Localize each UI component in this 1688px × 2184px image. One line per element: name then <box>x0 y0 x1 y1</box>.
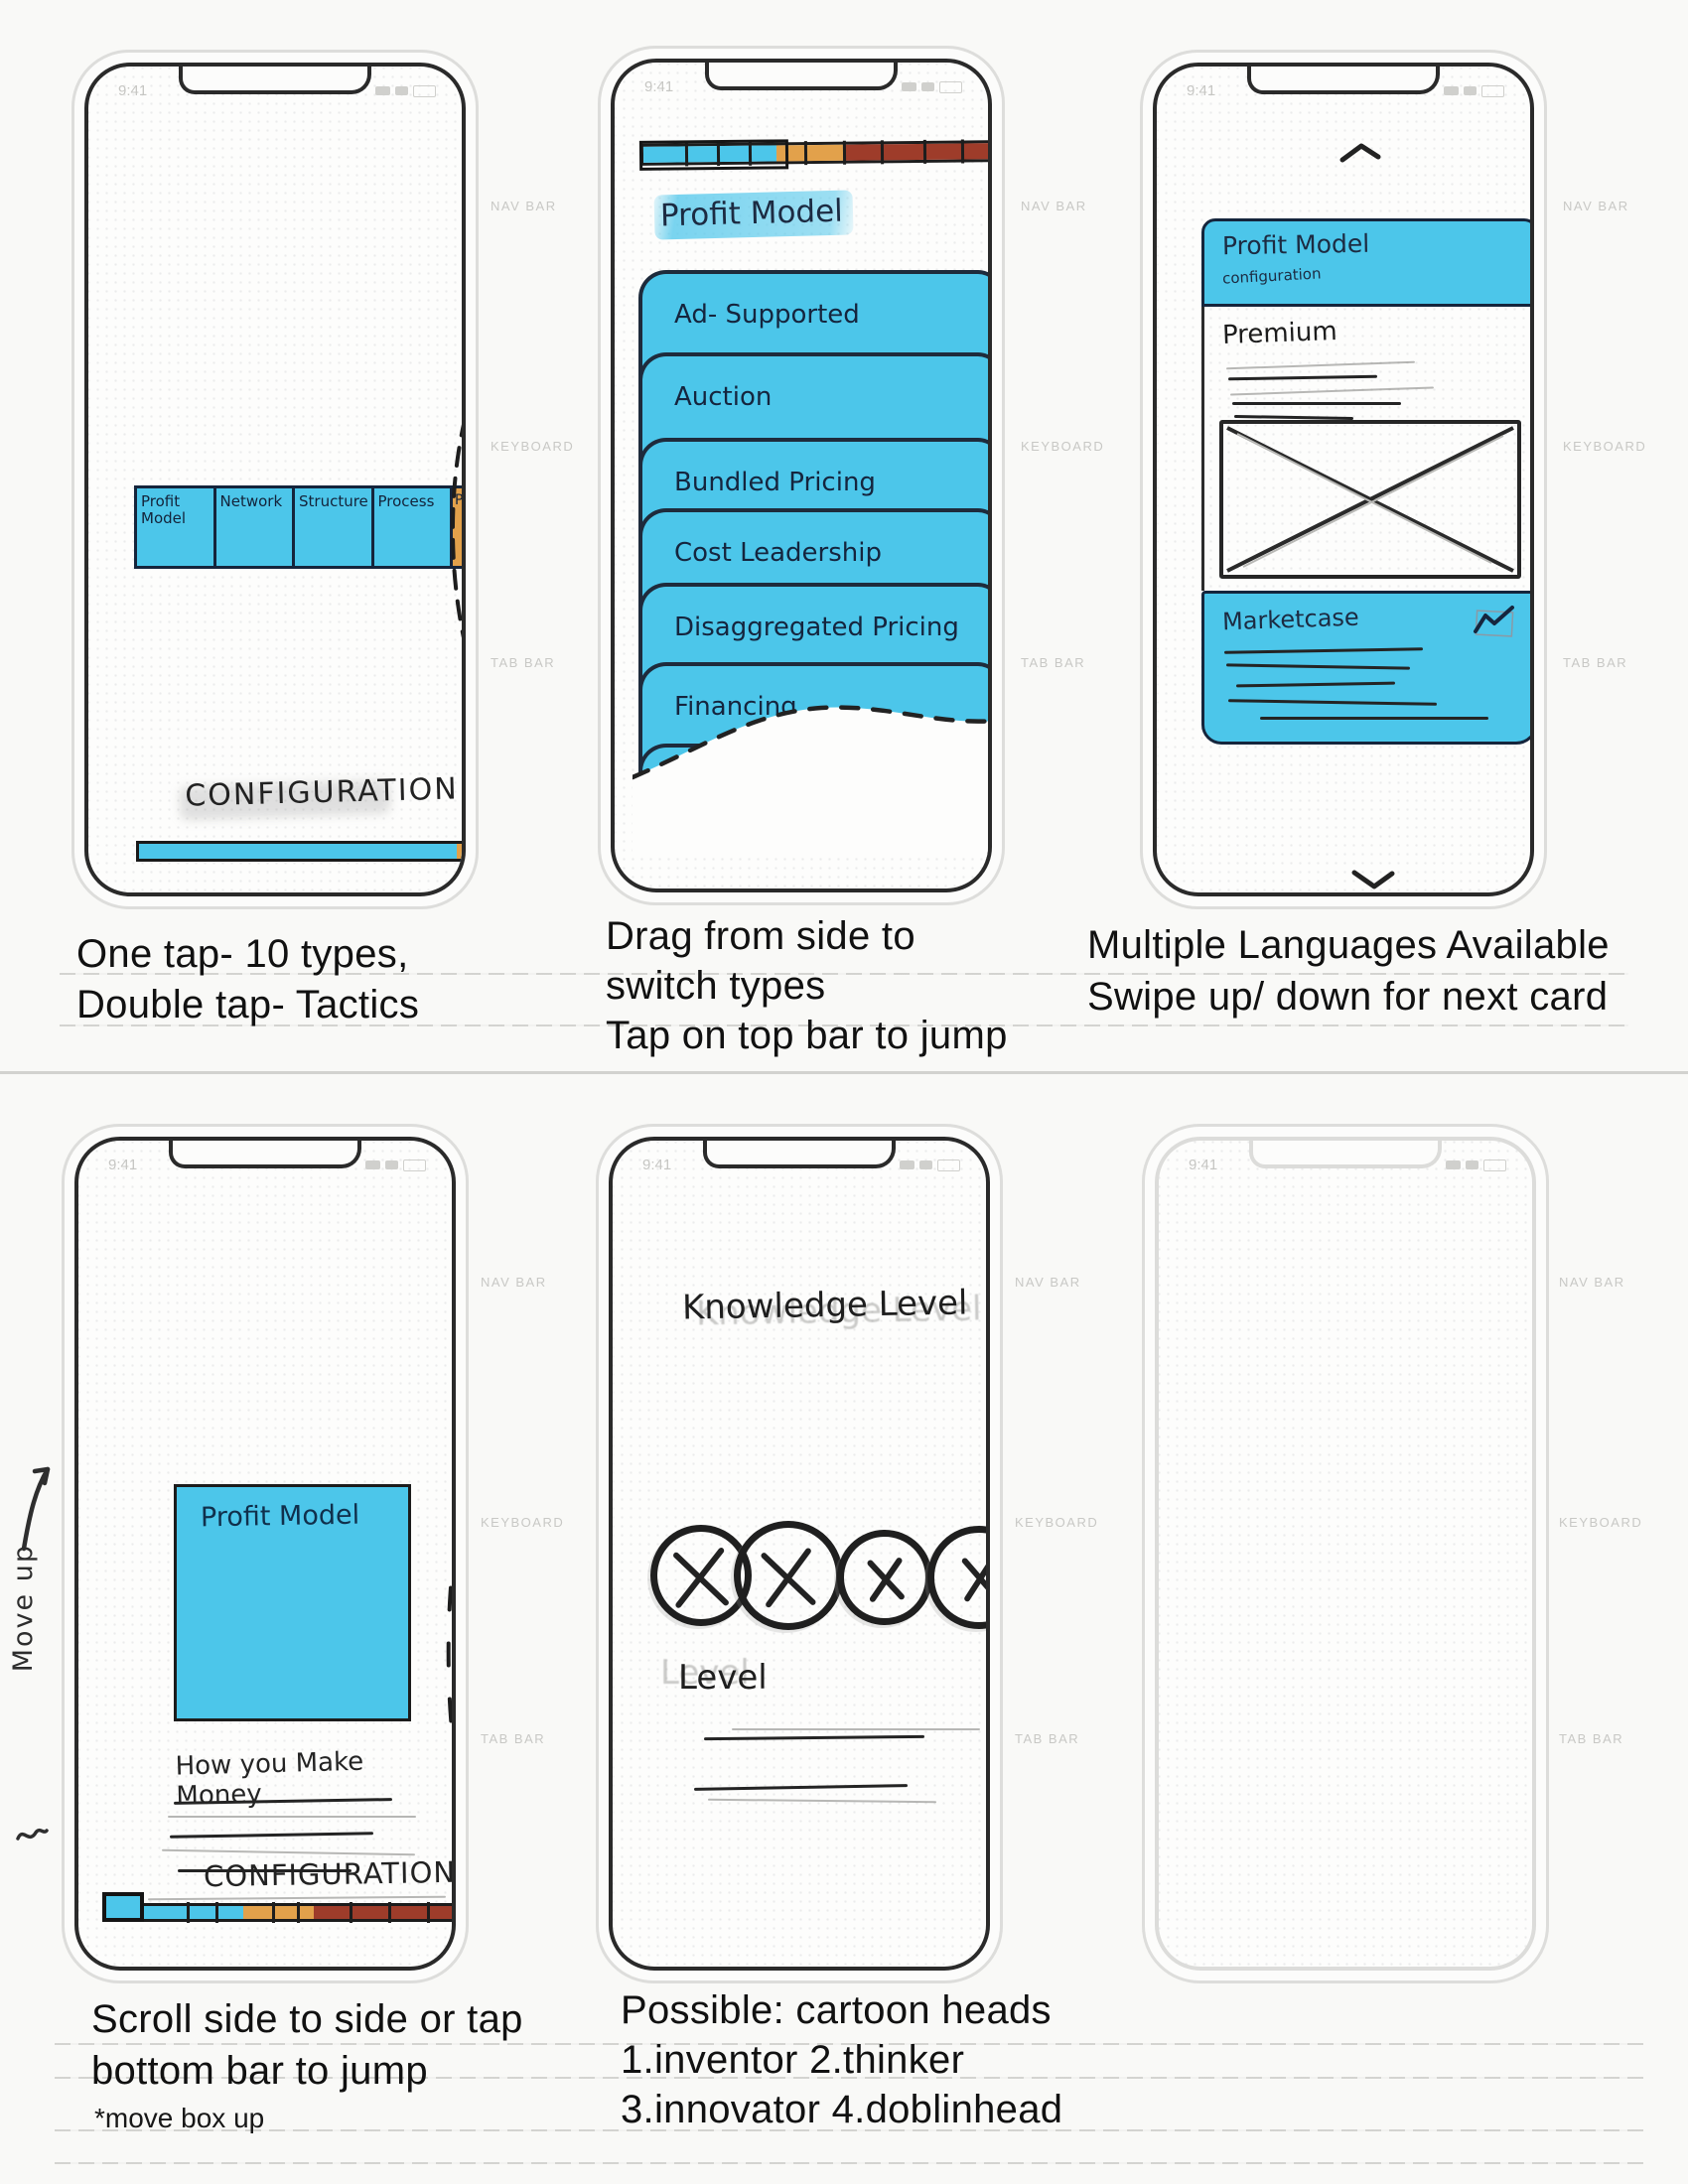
status-time: 9:41 <box>1187 82 1215 99</box>
caption-line: bottom bar to jump <box>91 2045 523 2097</box>
card-label: Bundled Pricing <box>674 468 876 497</box>
status-time: 9:41 <box>118 82 147 99</box>
scribble-line <box>162 1849 415 1855</box>
margin-squiggle <box>14 1823 50 1848</box>
card-label: Ad- Supported <box>674 300 860 330</box>
phone-mockup-types: 9:41 Profit Model Network Structure Proc… <box>71 50 479 909</box>
scribble-line <box>1228 375 1377 380</box>
level-label: Level <box>678 1658 768 1698</box>
scribble-line <box>708 1799 936 1803</box>
caption-line: 1.inventor 2.thinker <box>621 2035 1062 2085</box>
detail-card-body: Premium <box>1201 307 1534 591</box>
scribble-line <box>1260 717 1488 720</box>
template-keyboard-label: KEYBOARD <box>1563 439 1646 454</box>
phone-screen: 9:41 Profit Model Ad- <box>611 59 992 892</box>
template-tabbar-label: TAB BAR <box>1563 655 1627 670</box>
template-keyboard-label: KEYBOARD <box>491 439 574 454</box>
scribble-line <box>170 1832 373 1839</box>
status-icons <box>1444 85 1504 97</box>
jump-bar-tick <box>881 140 884 164</box>
chevron-down-icon[interactable] <box>1349 869 1397 892</box>
template-tabbar-label: TAB BAR <box>1021 655 1085 670</box>
phone-notch <box>1249 1137 1442 1168</box>
marketcase-title: Marketcase <box>1222 604 1360 636</box>
jump-bar-tick <box>922 140 925 164</box>
ruled-line <box>55 2162 1643 2164</box>
phone-screen: 9:41 Profit Model Network Structure Proc… <box>84 63 466 896</box>
x-mark-icon <box>741 1528 836 1623</box>
type-box-profit-model[interactable]: Profit Model <box>137 488 216 566</box>
jump-bar-red-segment[interactable] <box>843 143 992 161</box>
template-navbar-label: NAV BAR <box>491 199 557 213</box>
torn-edge-wave <box>633 658 992 857</box>
scribble-line <box>1226 361 1415 370</box>
scribble-line <box>1234 415 1353 420</box>
status-time: 9:41 <box>108 1157 137 1173</box>
profit-model-card-label: Profit Model <box>201 1500 360 1534</box>
card-label: Cost Leadership <box>674 538 882 568</box>
configuration-label: CONFIGURATION <box>178 771 466 814</box>
caption-line: Drag from side to <box>606 911 1008 961</box>
caption-line: Swipe up/ down for next card <box>1087 971 1610 1023</box>
scribble-line <box>1224 647 1423 653</box>
jump-bar-tick <box>427 1902 430 1923</box>
template-tabbar-label: TAB BAR <box>481 1731 545 1746</box>
caption-line: Multiple Languages Available <box>1087 919 1610 971</box>
phone-mockup-card-list: 9:41 Profit Model Ad- <box>598 46 1005 905</box>
jump-bar-tick <box>350 1902 352 1923</box>
template-keyboard-label: KEYBOARD <box>1559 1515 1642 1530</box>
phone-mockup-detail-card: 9:41 Profit Model configuration Premium <box>1140 50 1547 909</box>
template-keyboard-label: KEYBOARD <box>1021 439 1104 454</box>
template-keyboard-label: KEYBOARD <box>481 1515 564 1530</box>
jump-bar-current-window <box>639 139 789 171</box>
status-icons <box>902 81 962 93</box>
image-placeholder <box>1219 420 1521 579</box>
caption-line: switch types <box>606 961 1008 1011</box>
phone-notch <box>1247 63 1440 94</box>
caption-line: Scroll side to side or tap <box>91 1993 523 2045</box>
line-chart-icon <box>1471 602 1520 641</box>
level-circle-2[interactable] <box>734 1521 843 1630</box>
caption-phone1: One tap- 10 types, Double tap- Tactics <box>76 929 419 1030</box>
phone-notch <box>179 63 371 94</box>
caption-phone4: Scroll side to side or tap bottom bar to… <box>91 1993 523 2097</box>
bottom-bar-current-indicator[interactable] <box>102 1892 144 1922</box>
jump-bar-tick <box>297 1902 300 1923</box>
status-time: 9:41 <box>642 1157 671 1173</box>
phone-notch <box>705 59 898 90</box>
level-circle-3[interactable] <box>837 1530 932 1625</box>
top-jump-bar[interactable] <box>640 140 992 166</box>
caption-phone4-footnote: *move box up <box>94 2103 264 2134</box>
x-mark-icon <box>934 1533 990 1622</box>
jump-bar-tick <box>272 1902 275 1923</box>
jump-bar-tick <box>388 1902 391 1923</box>
x-mark-icon <box>844 1537 925 1618</box>
caption-line: Possible: cartoon heads <box>621 1985 1062 2035</box>
status-time: 9:41 <box>644 78 673 95</box>
section-title: Premium <box>1222 317 1338 350</box>
x-mark-icon <box>657 1532 745 1619</box>
detail-card-header: Profit Model configuration <box>1201 218 1534 307</box>
caption-phone5: Possible: cartoon heads 1.inventor 2.thi… <box>621 1985 1062 2134</box>
jump-bar-tick <box>842 141 845 165</box>
progress-bar-orange-tail <box>457 844 466 859</box>
margin-arrow-up <box>14 1461 58 1553</box>
template-tabbar-label: TAB BAR <box>1015 1731 1079 1746</box>
scribble-line <box>1226 663 1410 669</box>
wireframe-sketch-page: 9:41 Profit Model Network Structure Proc… <box>0 0 1688 2184</box>
status-icons <box>900 1160 960 1171</box>
jump-bar-tick <box>187 1902 190 1923</box>
scribble-line <box>1228 699 1437 705</box>
status-icons <box>1446 1160 1506 1171</box>
scribble-line <box>168 1816 416 1818</box>
phone-mockup-configuration: 9:41 Profit Model How you Make Money CON… <box>62 1124 469 1983</box>
caption-line: Double tap- Tactics <box>76 980 419 1030</box>
template-navbar-label: NAV BAR <box>1021 199 1087 213</box>
status-time: 9:41 <box>1189 1157 1217 1173</box>
image-placeholder-x <box>1223 424 1517 575</box>
template-navbar-label: NAV BAR <box>1563 199 1629 213</box>
scribble-line <box>694 1784 908 1790</box>
chevron-up-icon[interactable] <box>1337 142 1383 164</box>
phone-screen: 9:41 Knowledge Level Knowledge Level <box>609 1137 990 1971</box>
template-keyboard-label: KEYBOARD <box>1015 1515 1098 1530</box>
level-circle-4[interactable] <box>927 1526 990 1629</box>
page-title-text: Profit Model <box>653 190 853 239</box>
scribble-line <box>1230 386 1434 395</box>
bottom-jump-bar[interactable] <box>106 1903 456 1922</box>
jump-bar-tick <box>961 139 964 163</box>
page-title: Profit Model <box>654 193 854 233</box>
card-label: Disaggregated Pricing <box>674 613 959 642</box>
detail-card-subtitle: configuration <box>1222 264 1322 287</box>
configuration-label: CONFIGURATION <box>204 1855 456 1893</box>
caption-line: Tap on top bar to jump <box>606 1011 1008 1060</box>
template-navbar-label: NAV BAR <box>481 1275 547 1290</box>
screen-title: Knowledge Level <box>682 1283 968 1327</box>
phone-notch <box>703 1137 896 1168</box>
phone-notch <box>169 1137 361 1168</box>
phone-mockup-blank: 9:41 <box>1142 1124 1549 1983</box>
margin-note: Move up <box>8 1544 39 1672</box>
jump-bar-red-segment[interactable] <box>314 1906 456 1919</box>
scribble-line <box>732 1728 980 1730</box>
caption-phone2: Drag from side to switch types Tap on to… <box>606 911 1008 1060</box>
status-icons <box>365 1160 426 1171</box>
status-icons <box>375 85 436 97</box>
phone-screen: 9:41 Profit Model How you Make Money CON… <box>74 1137 456 1971</box>
swipe-edge-dashed-arc <box>434 382 466 702</box>
jump-bar-tick <box>804 141 807 165</box>
scribble-line <box>704 1735 924 1740</box>
phone-screen: 9:41 <box>1155 1137 1536 1971</box>
jump-bar-orange-segment[interactable] <box>243 1906 314 1919</box>
caption-line: 3.innovator 4.doblinhead <box>621 2085 1062 2134</box>
template-navbar-label: NAV BAR <box>1015 1275 1081 1290</box>
type-selector-row[interactable]: Profit Model Network Structure Process P… <box>134 485 466 569</box>
scribble-line <box>1236 682 1395 687</box>
template-navbar-label: NAV BAR <box>1559 1275 1625 1290</box>
card-label: Auction <box>674 382 772 412</box>
detail-card[interactable]: Profit Model configuration Premium <box>1201 218 1534 745</box>
caption-line: One tap- 10 types, <box>76 929 419 980</box>
type-box-structure[interactable]: Structure <box>295 488 374 566</box>
type-box-network[interactable]: Network <box>216 488 296 566</box>
template-tabbar-label: TAB BAR <box>1559 1731 1623 1746</box>
detail-card-title: Profit Model <box>1222 229 1370 261</box>
template-tabbar-label: TAB BAR <box>491 655 555 670</box>
marketcase-card[interactable]: Marketcase <box>1201 591 1534 745</box>
configuration-progress-bar[interactable] <box>136 841 466 862</box>
profit-model-card[interactable]: Profit Model <box>174 1484 411 1721</box>
caption-phone3: Multiple Languages Available Swipe up/ d… <box>1087 919 1610 1023</box>
jump-bar-tick <box>215 1902 218 1923</box>
phone-screen: 9:41 Profit Model configuration Premium <box>1153 63 1534 896</box>
row-divider <box>0 1071 1688 1074</box>
scribble-line <box>148 1896 446 1901</box>
scribble-line <box>1232 402 1401 405</box>
phone-mockup-knowledge-level: 9:41 Knowledge Level Knowledge Level <box>596 1124 1003 1983</box>
